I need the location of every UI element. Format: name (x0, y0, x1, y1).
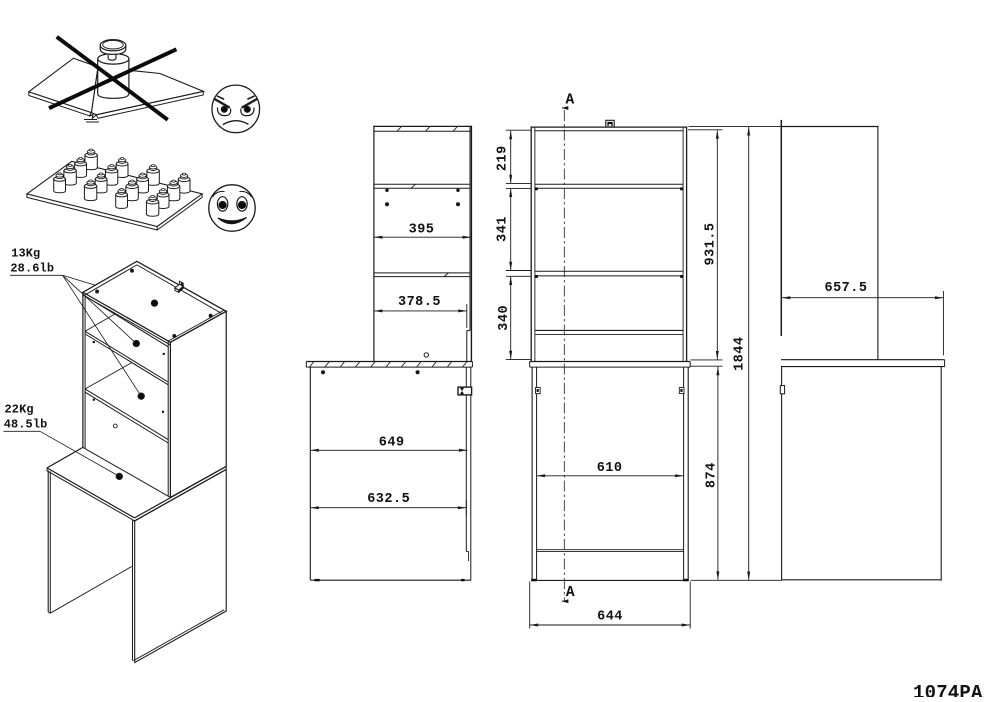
svg-text:644: 644 (597, 609, 623, 624)
svg-text:22Kg: 22Kg (5, 403, 34, 417)
svg-text:13Kg: 13Kg (11, 247, 40, 261)
svg-text:340: 340 (497, 305, 512, 331)
svg-text:48.5lb: 48.5lb (4, 418, 48, 432)
svg-text:1844: 1844 (733, 336, 748, 370)
svg-text:931.5: 931.5 (703, 222, 718, 265)
svg-text:632.5: 632.5 (367, 492, 410, 507)
svg-text:28.6lb: 28.6lb (10, 262, 54, 276)
svg-text:657.5: 657.5 (824, 281, 867, 296)
svg-text:219: 219 (496, 145, 511, 171)
svg-text:A: A (565, 92, 574, 108)
svg-text:378.5: 378.5 (398, 295, 441, 310)
svg-text:610: 610 (597, 461, 623, 476)
svg-text:395: 395 (409, 222, 435, 237)
svg-text:A: A (566, 585, 575, 601)
svg-text:341: 341 (496, 216, 511, 242)
svg-text:1074PA2: 1074PA2 (913, 682, 984, 697)
svg-text:874: 874 (705, 462, 720, 488)
svg-text:649: 649 (379, 436, 405, 451)
